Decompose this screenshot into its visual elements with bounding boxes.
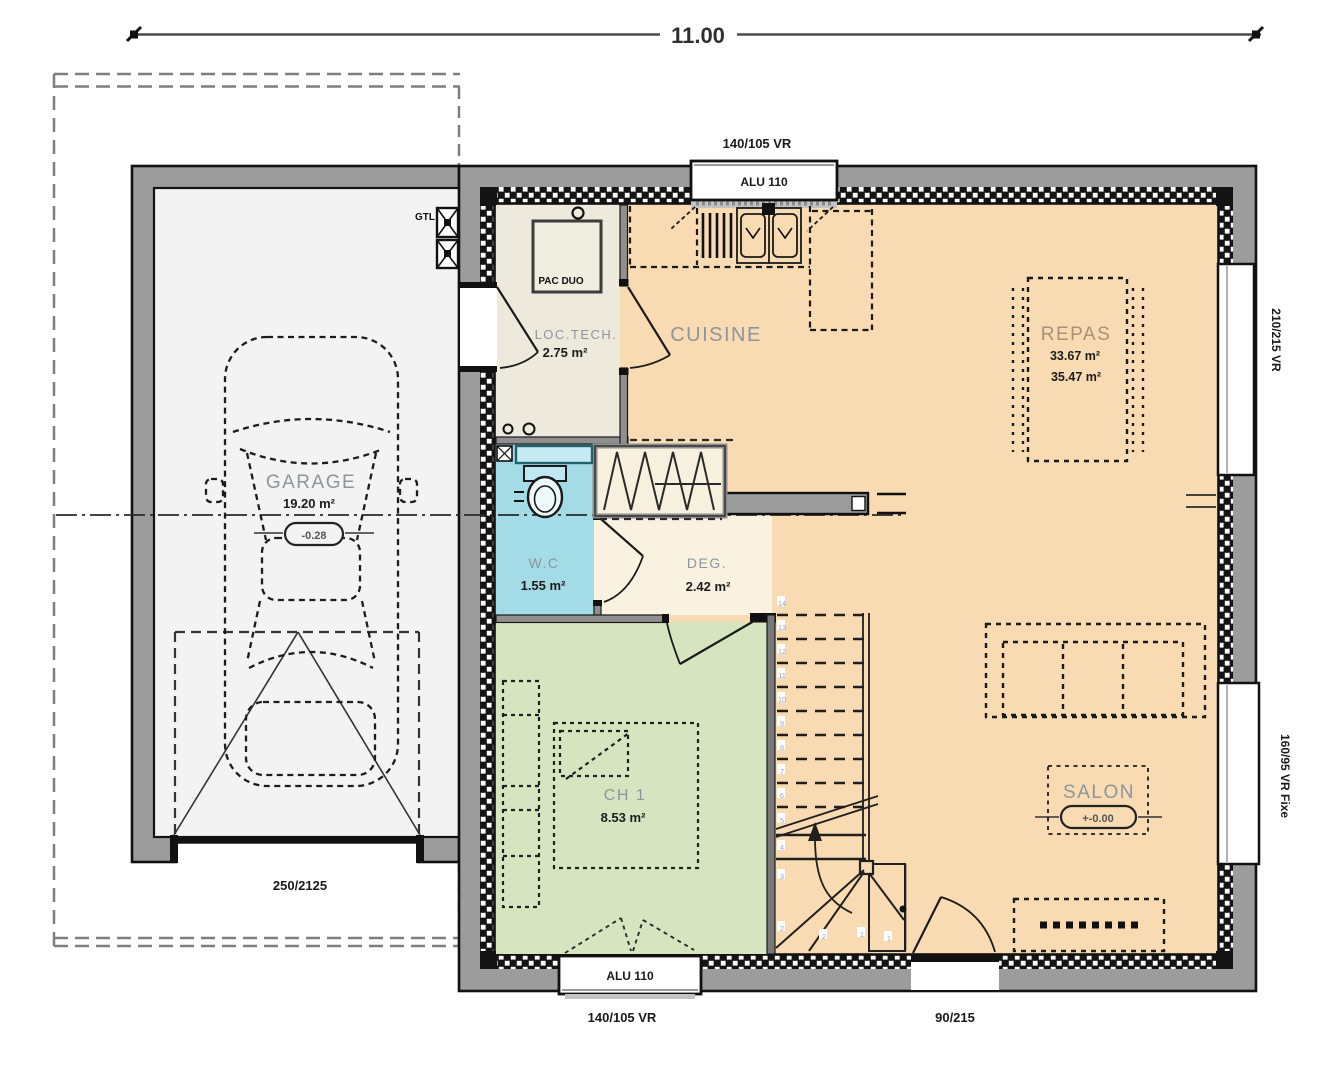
svg-text:35.47 m²: 35.47 m² [1051,370,1101,384]
svg-text:1: 1 [887,934,891,943]
svg-text:+-0.00: +-0.00 [1082,813,1114,825]
svg-text:DEG.: DEG. [687,555,727,571]
svg-text:14: 14 [778,599,786,608]
svg-text:9: 9 [780,719,784,728]
svg-text:W.C: W.C [529,555,560,571]
svg-text:19.20 m²: 19.20 m² [283,496,336,511]
svg-text:ALU 110: ALU 110 [740,175,788,189]
svg-text:11: 11 [778,671,786,680]
svg-text:10: 10 [778,695,786,704]
svg-text:SALON: SALON [1063,782,1135,803]
svg-text:13: 13 [778,623,786,632]
svg-text:140/105 VR: 140/105 VR [723,136,792,151]
svg-text:11.00: 11.00 [671,23,725,48]
svg-text:CH 1: CH 1 [604,787,646,804]
svg-text:7: 7 [780,767,784,776]
svg-text:3: 3 [780,872,784,881]
svg-text:GTL: GTL [415,212,435,223]
svg-text:5: 5 [780,816,784,825]
svg-text:12: 12 [778,647,786,656]
svg-text:CUISINE: CUISINE [670,324,762,346]
svg-text:2.42 m²: 2.42 m² [686,579,731,594]
svg-text:8: 8 [780,743,784,752]
svg-text:160/95 VR Fixe: 160/95 VR Fixe [1278,734,1292,818]
svg-text:PAC DUO: PAC DUO [538,276,584,287]
svg-text:ALU 110: ALU 110 [606,969,654,983]
svg-text:250/2125: 250/2125 [273,878,327,893]
svg-text:6: 6 [780,791,784,800]
svg-text:GARAGE: GARAGE [266,472,356,493]
svg-text:210/215 VR: 210/215 VR [1269,308,1283,372]
svg-text:-0.28: -0.28 [301,530,326,542]
svg-text:1: 1 [860,930,864,939]
svg-text:33.67 m²: 33.67 m² [1050,349,1100,363]
svg-text:90/215: 90/215 [935,1010,975,1025]
svg-text:1.55 m²: 1.55 m² [521,578,566,593]
svg-text:REPAS: REPAS [1041,324,1112,345]
svg-text:4: 4 [780,843,784,852]
svg-text:8.53 m²: 8.53 m² [601,810,646,825]
svg-text:2: 2 [780,924,784,933]
svg-text:140/105 VR: 140/105 VR [588,1010,657,1025]
svg-text:2: 2 [822,932,826,941]
svg-text:LOC.TECH.: LOC.TECH. [535,327,618,342]
svg-text:2.75 m²: 2.75 m² [543,345,588,360]
